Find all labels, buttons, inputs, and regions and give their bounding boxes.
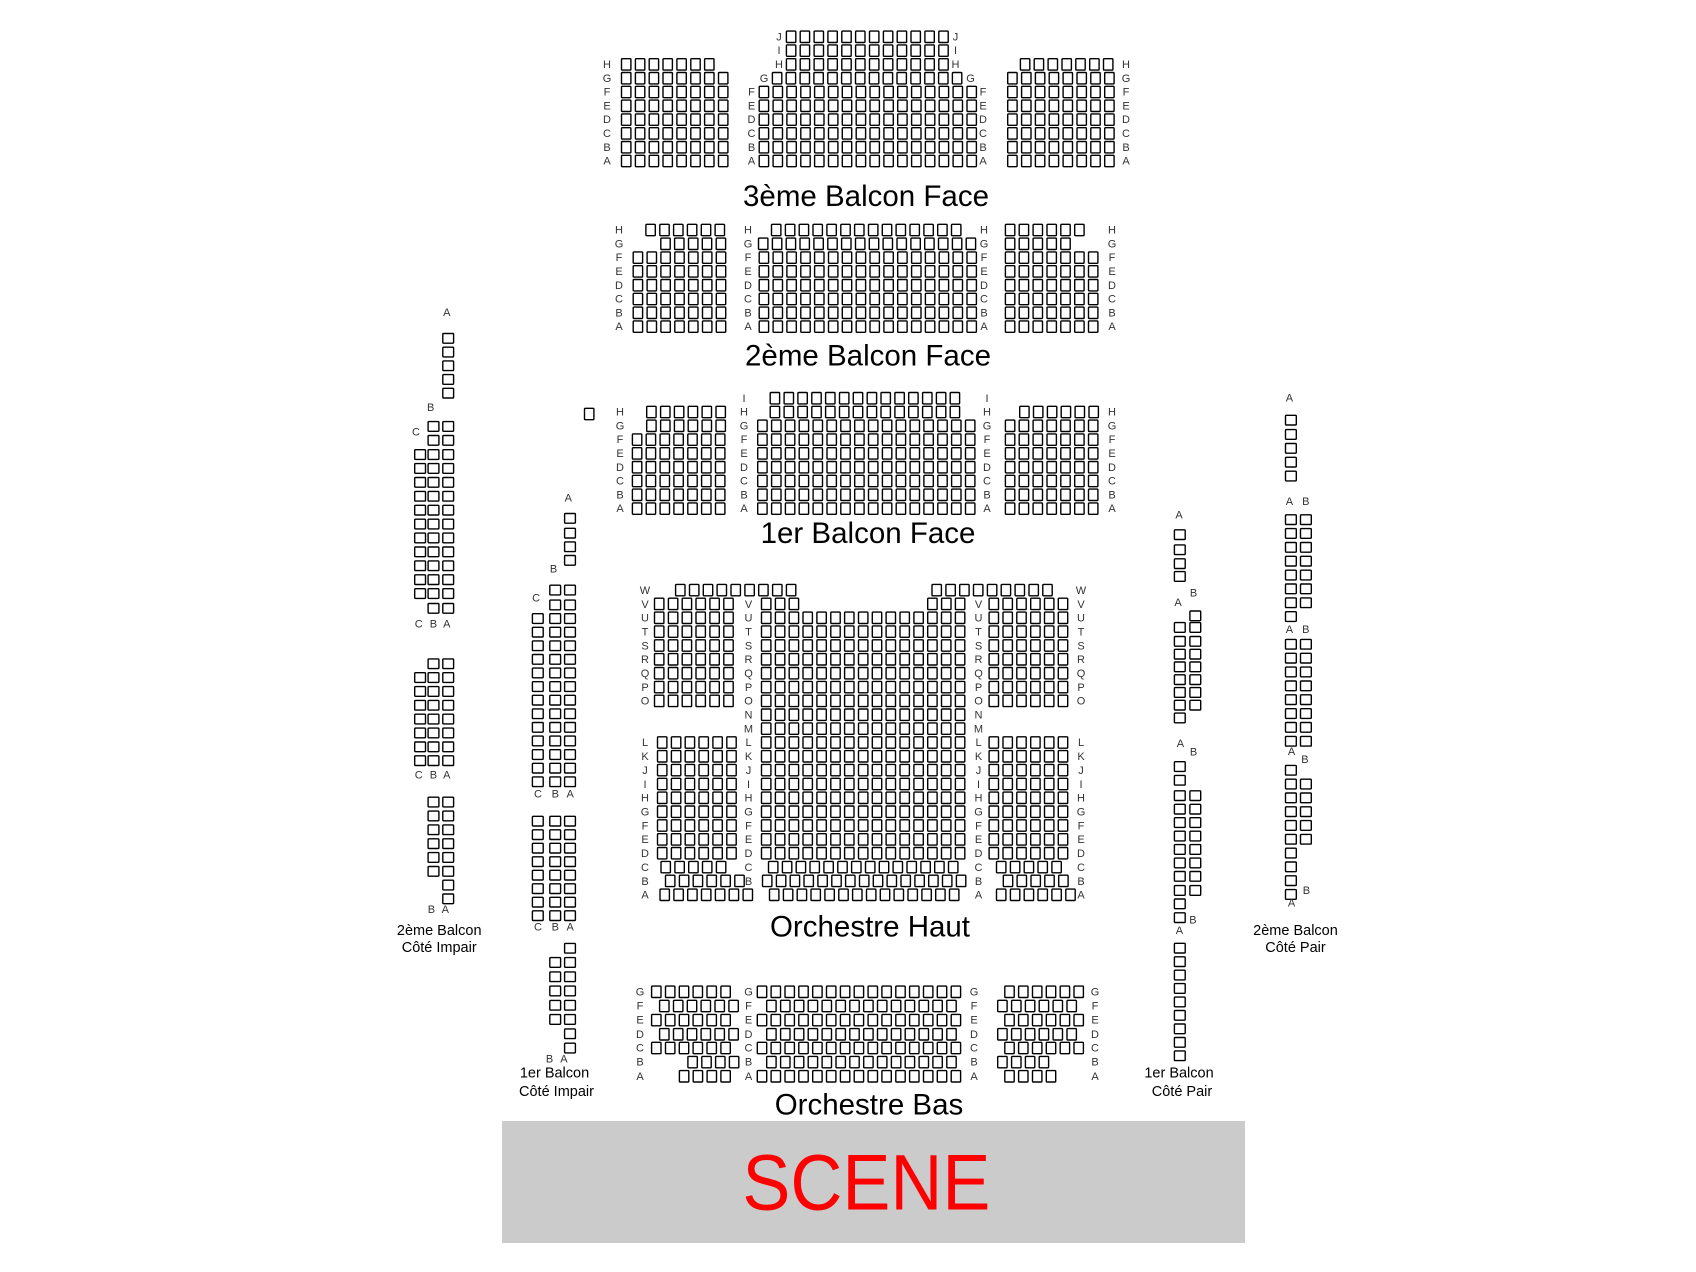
svg-text:M: M <box>974 723 983 735</box>
svg-text:O: O <box>641 696 650 708</box>
svg-text:G: G <box>641 807 650 819</box>
svg-text:C: C <box>745 862 753 874</box>
svg-text:G: G <box>744 807 753 819</box>
svg-text:D: D <box>745 848 753 860</box>
svg-text:G: G <box>760 73 769 85</box>
svg-text:C: C <box>636 1043 644 1055</box>
svg-text:G: G <box>1108 420 1117 432</box>
svg-text:A: A <box>1286 496 1294 508</box>
svg-text:D: D <box>1077 848 1085 860</box>
svg-text:A: A <box>567 789 575 801</box>
svg-text:Q: Q <box>1077 668 1086 680</box>
svg-text:R: R <box>745 654 753 666</box>
svg-text:A: A <box>1077 890 1085 902</box>
svg-text:S: S <box>975 640 982 652</box>
svg-text:E: E <box>1077 834 1084 846</box>
svg-text:B: B <box>430 770 437 782</box>
svg-text:U: U <box>975 613 983 625</box>
svg-text:E: E <box>983 448 990 460</box>
svg-text:C: C <box>970 1043 978 1055</box>
svg-text:U: U <box>1077 613 1085 625</box>
svg-text:D: D <box>745 1029 753 1041</box>
svg-text:A: A <box>983 503 991 515</box>
svg-text:F: F <box>745 820 752 832</box>
svg-text:C: C <box>1108 294 1116 306</box>
svg-text:W: W <box>640 585 651 597</box>
svg-text:G: G <box>980 238 989 250</box>
svg-text:B: B <box>1190 587 1197 599</box>
svg-text:B: B <box>1190 746 1197 758</box>
svg-text:3ème Balcon Face: 3ème Balcon Face <box>743 180 989 213</box>
svg-text:G: G <box>603 73 612 85</box>
svg-text:C: C <box>615 294 623 306</box>
svg-text:C: C <box>415 770 423 782</box>
svg-text:H: H <box>603 59 611 71</box>
svg-text:G: G <box>740 420 749 432</box>
svg-text:D: D <box>636 1029 644 1041</box>
svg-text:E: E <box>636 1015 643 1027</box>
svg-text:J: J <box>953 31 959 43</box>
svg-text:F: F <box>981 252 988 264</box>
svg-text:H: H <box>616 407 624 419</box>
svg-text:G: G <box>1122 73 1131 85</box>
svg-text:1er Balcon: 1er Balcon <box>520 1066 589 1082</box>
svg-text:B: B <box>745 876 752 888</box>
svg-text:G: G <box>1108 238 1117 250</box>
svg-text:J: J <box>776 31 782 43</box>
svg-text:H: H <box>1108 225 1116 237</box>
svg-text:A: A <box>970 1071 978 1083</box>
svg-text:A: A <box>1288 898 1296 910</box>
svg-text:A: A <box>1288 746 1296 758</box>
svg-text:I: I <box>977 779 980 791</box>
svg-text:SCENE: SCENE <box>742 1138 990 1227</box>
svg-text:C: C <box>975 862 983 874</box>
svg-text:C: C <box>603 128 611 140</box>
svg-text:E: E <box>748 100 755 112</box>
svg-text:B: B <box>428 904 435 916</box>
svg-text:D: D <box>1108 280 1116 292</box>
svg-text:P: P <box>1077 682 1084 694</box>
svg-text:K: K <box>1077 751 1085 763</box>
svg-text:E: E <box>603 100 610 112</box>
svg-text:E: E <box>744 266 751 278</box>
svg-text:D: D <box>980 280 988 292</box>
svg-text:A: A <box>1108 503 1116 515</box>
svg-text:D: D <box>641 848 649 860</box>
svg-text:2ème Balcon: 2ème Balcon <box>397 923 482 939</box>
svg-text:R: R <box>1077 654 1085 666</box>
svg-text:N: N <box>975 710 983 722</box>
svg-text:Côté Pair: Côté Pair <box>1152 1084 1213 1100</box>
svg-text:G: G <box>744 986 753 998</box>
svg-text:D: D <box>1122 114 1130 126</box>
svg-text:B: B <box>1108 489 1115 501</box>
svg-text:G: G <box>966 73 975 85</box>
svg-text:B: B <box>636 1057 643 1069</box>
svg-text:E: E <box>970 1015 977 1027</box>
svg-text:A: A <box>1286 393 1294 405</box>
svg-text:D: D <box>740 462 748 474</box>
svg-text:G: G <box>744 238 753 250</box>
svg-text:G: G <box>1077 807 1086 819</box>
svg-text:Q: Q <box>641 668 650 680</box>
svg-text:A: A <box>636 1071 644 1083</box>
svg-text:B: B <box>641 876 648 888</box>
svg-text:K: K <box>745 751 753 763</box>
svg-text:A: A <box>603 156 611 168</box>
svg-text:H: H <box>1122 59 1130 71</box>
svg-text:V: V <box>641 599 649 611</box>
svg-text:R: R <box>975 654 983 666</box>
svg-text:F: F <box>984 434 991 446</box>
svg-text:D: D <box>603 114 611 126</box>
svg-text:L: L <box>1078 737 1084 749</box>
svg-text:B: B <box>745 1057 752 1069</box>
svg-text:E: E <box>1108 448 1115 460</box>
svg-text:U: U <box>641 613 649 625</box>
svg-text:H: H <box>744 225 752 237</box>
svg-text:L: L <box>642 737 648 749</box>
svg-text:A: A <box>443 307 451 319</box>
svg-text:F: F <box>604 87 611 99</box>
svg-text:P: P <box>745 682 752 694</box>
svg-text:W: W <box>1076 585 1087 597</box>
svg-text:A: A <box>979 156 987 168</box>
svg-text:D: D <box>748 114 756 126</box>
svg-text:R: R <box>641 654 649 666</box>
svg-text:C: C <box>748 128 756 140</box>
svg-text:I: I <box>643 779 646 791</box>
svg-text:Côté Impair: Côté Impair <box>402 940 477 956</box>
svg-text:B: B <box>550 564 557 576</box>
svg-text:A: A <box>748 156 756 168</box>
svg-text:A: A <box>1122 156 1130 168</box>
svg-text:K: K <box>975 751 983 763</box>
svg-text:C: C <box>534 922 542 934</box>
svg-text:A: A <box>567 922 575 934</box>
svg-text:E: E <box>616 448 623 460</box>
svg-text:V: V <box>1077 599 1085 611</box>
svg-text:D: D <box>970 1029 978 1041</box>
svg-text:D: D <box>983 462 991 474</box>
svg-text:I: I <box>1079 779 1082 791</box>
svg-text:C: C <box>1108 476 1116 488</box>
svg-text:I: I <box>777 45 780 57</box>
svg-text:H: H <box>975 793 983 805</box>
svg-text:C: C <box>1091 1043 1099 1055</box>
svg-text:H: H <box>952 59 960 71</box>
svg-text:T: T <box>642 626 649 638</box>
svg-text:F: F <box>745 252 752 264</box>
svg-text:Q: Q <box>974 668 983 680</box>
svg-text:C: C <box>415 619 423 631</box>
svg-text:C: C <box>532 593 540 605</box>
svg-text:B: B <box>740 489 747 501</box>
svg-text:F: F <box>980 87 987 99</box>
svg-text:J: J <box>976 765 982 777</box>
svg-text:D: D <box>1091 1029 1099 1041</box>
svg-text:A: A <box>1177 738 1185 750</box>
svg-text:A: A <box>615 321 623 333</box>
svg-text:E: E <box>641 834 648 846</box>
svg-text:B: B <box>975 876 982 888</box>
svg-text:B: B <box>983 489 990 501</box>
svg-text:C: C <box>744 294 752 306</box>
svg-text:E: E <box>1122 100 1129 112</box>
svg-text:H: H <box>740 407 748 419</box>
svg-text:E: E <box>979 100 986 112</box>
svg-text:F: F <box>616 252 623 264</box>
svg-text:Côté Impair: Côté Impair <box>519 1084 594 1100</box>
svg-text:F: F <box>617 434 624 446</box>
svg-text:A: A <box>443 619 451 631</box>
svg-text:B: B <box>615 307 622 319</box>
svg-text:A: A <box>443 770 451 782</box>
svg-text:E: E <box>615 266 622 278</box>
svg-text:O: O <box>1077 696 1086 708</box>
svg-text:E: E <box>980 266 987 278</box>
svg-text:Orchestre Bas: Orchestre Bas <box>775 1089 964 1122</box>
svg-text:A: A <box>565 493 573 505</box>
svg-text:B: B <box>1303 885 1310 897</box>
svg-text:K: K <box>641 751 649 763</box>
svg-text:G: G <box>974 807 983 819</box>
svg-text:H: H <box>980 225 988 237</box>
svg-text:O: O <box>974 696 983 708</box>
svg-text:A: A <box>1108 321 1116 333</box>
svg-text:A: A <box>1286 624 1294 636</box>
svg-text:E: E <box>1108 266 1115 278</box>
svg-text:B: B <box>744 307 751 319</box>
svg-text:G: G <box>616 420 625 432</box>
svg-text:A: A <box>745 1071 753 1083</box>
svg-text:E: E <box>975 834 982 846</box>
svg-text:B: B <box>980 307 987 319</box>
svg-text:H: H <box>615 225 623 237</box>
svg-text:C: C <box>641 862 649 874</box>
svg-text:F: F <box>1078 820 1085 832</box>
svg-text:B: B <box>1122 142 1129 154</box>
svg-text:C: C <box>412 427 420 439</box>
svg-text:B: B <box>552 922 559 934</box>
svg-text:B: B <box>970 1057 977 1069</box>
svg-text:B: B <box>427 402 434 414</box>
svg-text:A: A <box>616 503 624 515</box>
svg-text:B: B <box>1091 1057 1098 1069</box>
svg-text:F: F <box>1092 1001 1099 1013</box>
svg-text:L: L <box>745 737 751 749</box>
svg-text:B: B <box>546 1054 553 1066</box>
svg-text:C: C <box>980 294 988 306</box>
svg-text:O: O <box>744 696 753 708</box>
svg-text:D: D <box>615 280 623 292</box>
svg-text:P: P <box>975 682 982 694</box>
svg-text:E: E <box>740 448 747 460</box>
svg-text:Orchestre Haut: Orchestre Haut <box>770 911 970 944</box>
svg-text:I: I <box>985 393 988 405</box>
svg-text:D: D <box>979 114 987 126</box>
svg-text:U: U <box>745 613 753 625</box>
svg-text:1er Balcon Face: 1er Balcon Face <box>761 517 976 550</box>
svg-text:Côté Pair: Côté Pair <box>1265 940 1326 956</box>
svg-text:A: A <box>744 321 752 333</box>
svg-text:G: G <box>983 420 992 432</box>
svg-text:E: E <box>745 1015 752 1027</box>
svg-text:I: I <box>954 45 957 57</box>
svg-text:A: A <box>560 1054 568 1066</box>
svg-text:A: A <box>641 890 649 902</box>
svg-text:N: N <box>745 710 753 722</box>
svg-text:T: T <box>975 626 982 638</box>
svg-text:B: B <box>1108 307 1115 319</box>
svg-text:B: B <box>1302 624 1309 636</box>
svg-text:B: B <box>552 789 559 801</box>
svg-text:C: C <box>983 476 991 488</box>
svg-text:V: V <box>745 599 753 611</box>
svg-text:A: A <box>442 904 450 916</box>
svg-text:B: B <box>1302 496 1309 508</box>
svg-text:F: F <box>1123 87 1130 99</box>
svg-text:S: S <box>1077 640 1084 652</box>
svg-text:C: C <box>1122 128 1130 140</box>
svg-text:A: A <box>980 321 988 333</box>
svg-text:V: V <box>975 599 983 611</box>
svg-text:1er Balcon: 1er Balcon <box>1144 1066 1213 1082</box>
svg-text:A: A <box>1091 1071 1099 1083</box>
svg-text:H: H <box>1077 793 1085 805</box>
svg-text:F: F <box>971 1001 978 1013</box>
svg-text:I: I <box>742 393 745 405</box>
svg-text:L: L <box>975 737 981 749</box>
svg-text:D: D <box>975 848 983 860</box>
svg-text:B: B <box>748 142 755 154</box>
svg-text:C: C <box>740 476 748 488</box>
svg-text:F: F <box>642 820 649 832</box>
svg-text:F: F <box>637 1001 644 1013</box>
svg-text:S: S <box>745 640 752 652</box>
svg-text:A: A <box>975 890 983 902</box>
svg-text:J: J <box>746 765 752 777</box>
svg-text:A: A <box>1176 925 1184 937</box>
svg-text:F: F <box>745 1001 752 1013</box>
svg-text:B: B <box>1077 876 1084 888</box>
svg-text:J: J <box>642 765 648 777</box>
svg-text:C: C <box>979 128 987 140</box>
svg-text:E: E <box>1091 1015 1098 1027</box>
svg-text:S: S <box>641 640 648 652</box>
svg-text:C: C <box>534 789 542 801</box>
svg-text:B: B <box>616 489 623 501</box>
svg-text:C: C <box>1077 862 1085 874</box>
svg-text:C: C <box>745 1043 753 1055</box>
svg-text:A: A <box>1175 510 1183 522</box>
svg-text:B: B <box>603 142 610 154</box>
svg-text:F: F <box>741 434 748 446</box>
svg-text:F: F <box>1109 252 1116 264</box>
svg-text:D: D <box>616 462 624 474</box>
svg-text:A: A <box>740 503 748 515</box>
svg-text:A: A <box>1174 597 1182 609</box>
svg-text:2ème Balcon Face: 2ème Balcon Face <box>745 340 991 373</box>
svg-text:H: H <box>641 793 649 805</box>
svg-text:G: G <box>1091 986 1100 998</box>
svg-text:I: I <box>747 779 750 791</box>
svg-text:P: P <box>641 682 648 694</box>
svg-text:2ème Balcon: 2ème Balcon <box>1253 923 1338 939</box>
svg-text:G: G <box>615 238 624 250</box>
svg-text:F: F <box>975 820 982 832</box>
svg-text:B: B <box>979 142 986 154</box>
svg-text:T: T <box>745 626 752 638</box>
svg-text:F: F <box>1109 434 1116 446</box>
svg-text:J: J <box>1078 765 1084 777</box>
svg-text:H: H <box>1108 407 1116 419</box>
svg-text:H: H <box>983 407 991 419</box>
svg-text:D: D <box>744 280 752 292</box>
svg-text:E: E <box>745 834 752 846</box>
svg-text:D: D <box>1108 462 1116 474</box>
svg-text:H: H <box>745 793 753 805</box>
svg-text:B: B <box>430 619 437 631</box>
svg-text:H: H <box>775 59 783 71</box>
svg-text:Q: Q <box>744 668 753 680</box>
svg-text:G: G <box>636 986 645 998</box>
svg-text:M: M <box>744 723 753 735</box>
svg-text:F: F <box>748 87 755 99</box>
svg-text:B: B <box>1301 754 1308 766</box>
svg-text:G: G <box>970 986 979 998</box>
svg-text:C: C <box>616 476 624 488</box>
svg-text:B: B <box>1189 914 1196 926</box>
svg-text:T: T <box>1078 626 1085 638</box>
